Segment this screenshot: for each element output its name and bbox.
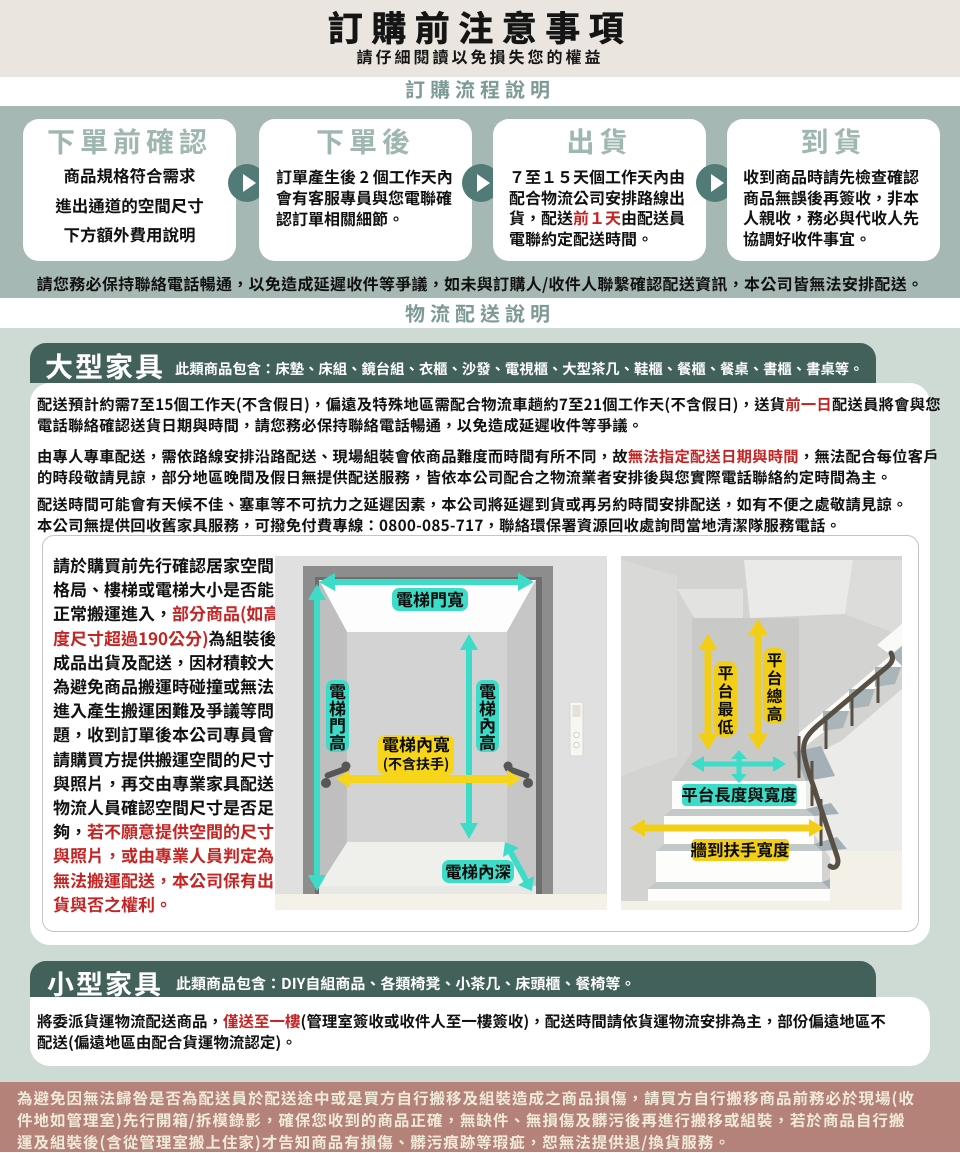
svg-text:(不含扶手): (不含扶手) — [383, 754, 450, 774]
svg-text:高: 高 — [479, 729, 496, 754]
svg-text:電梯內寬: 電梯內寬 — [382, 731, 450, 756]
svg-text:高: 高 — [766, 701, 782, 725]
svg-text:電梯門寬: 電梯門寬 — [396, 586, 464, 611]
svg-text:高: 高 — [329, 729, 346, 754]
svg-text:電梯內深: 電梯內深 — [445, 859, 512, 883]
svg-text:牆到扶手寬度: 牆到扶手寬度 — [691, 837, 791, 861]
svg-text:低: 低 — [717, 714, 733, 738]
svg-text:平台長度與寬度: 平台長度與寬度 — [681, 782, 797, 806]
